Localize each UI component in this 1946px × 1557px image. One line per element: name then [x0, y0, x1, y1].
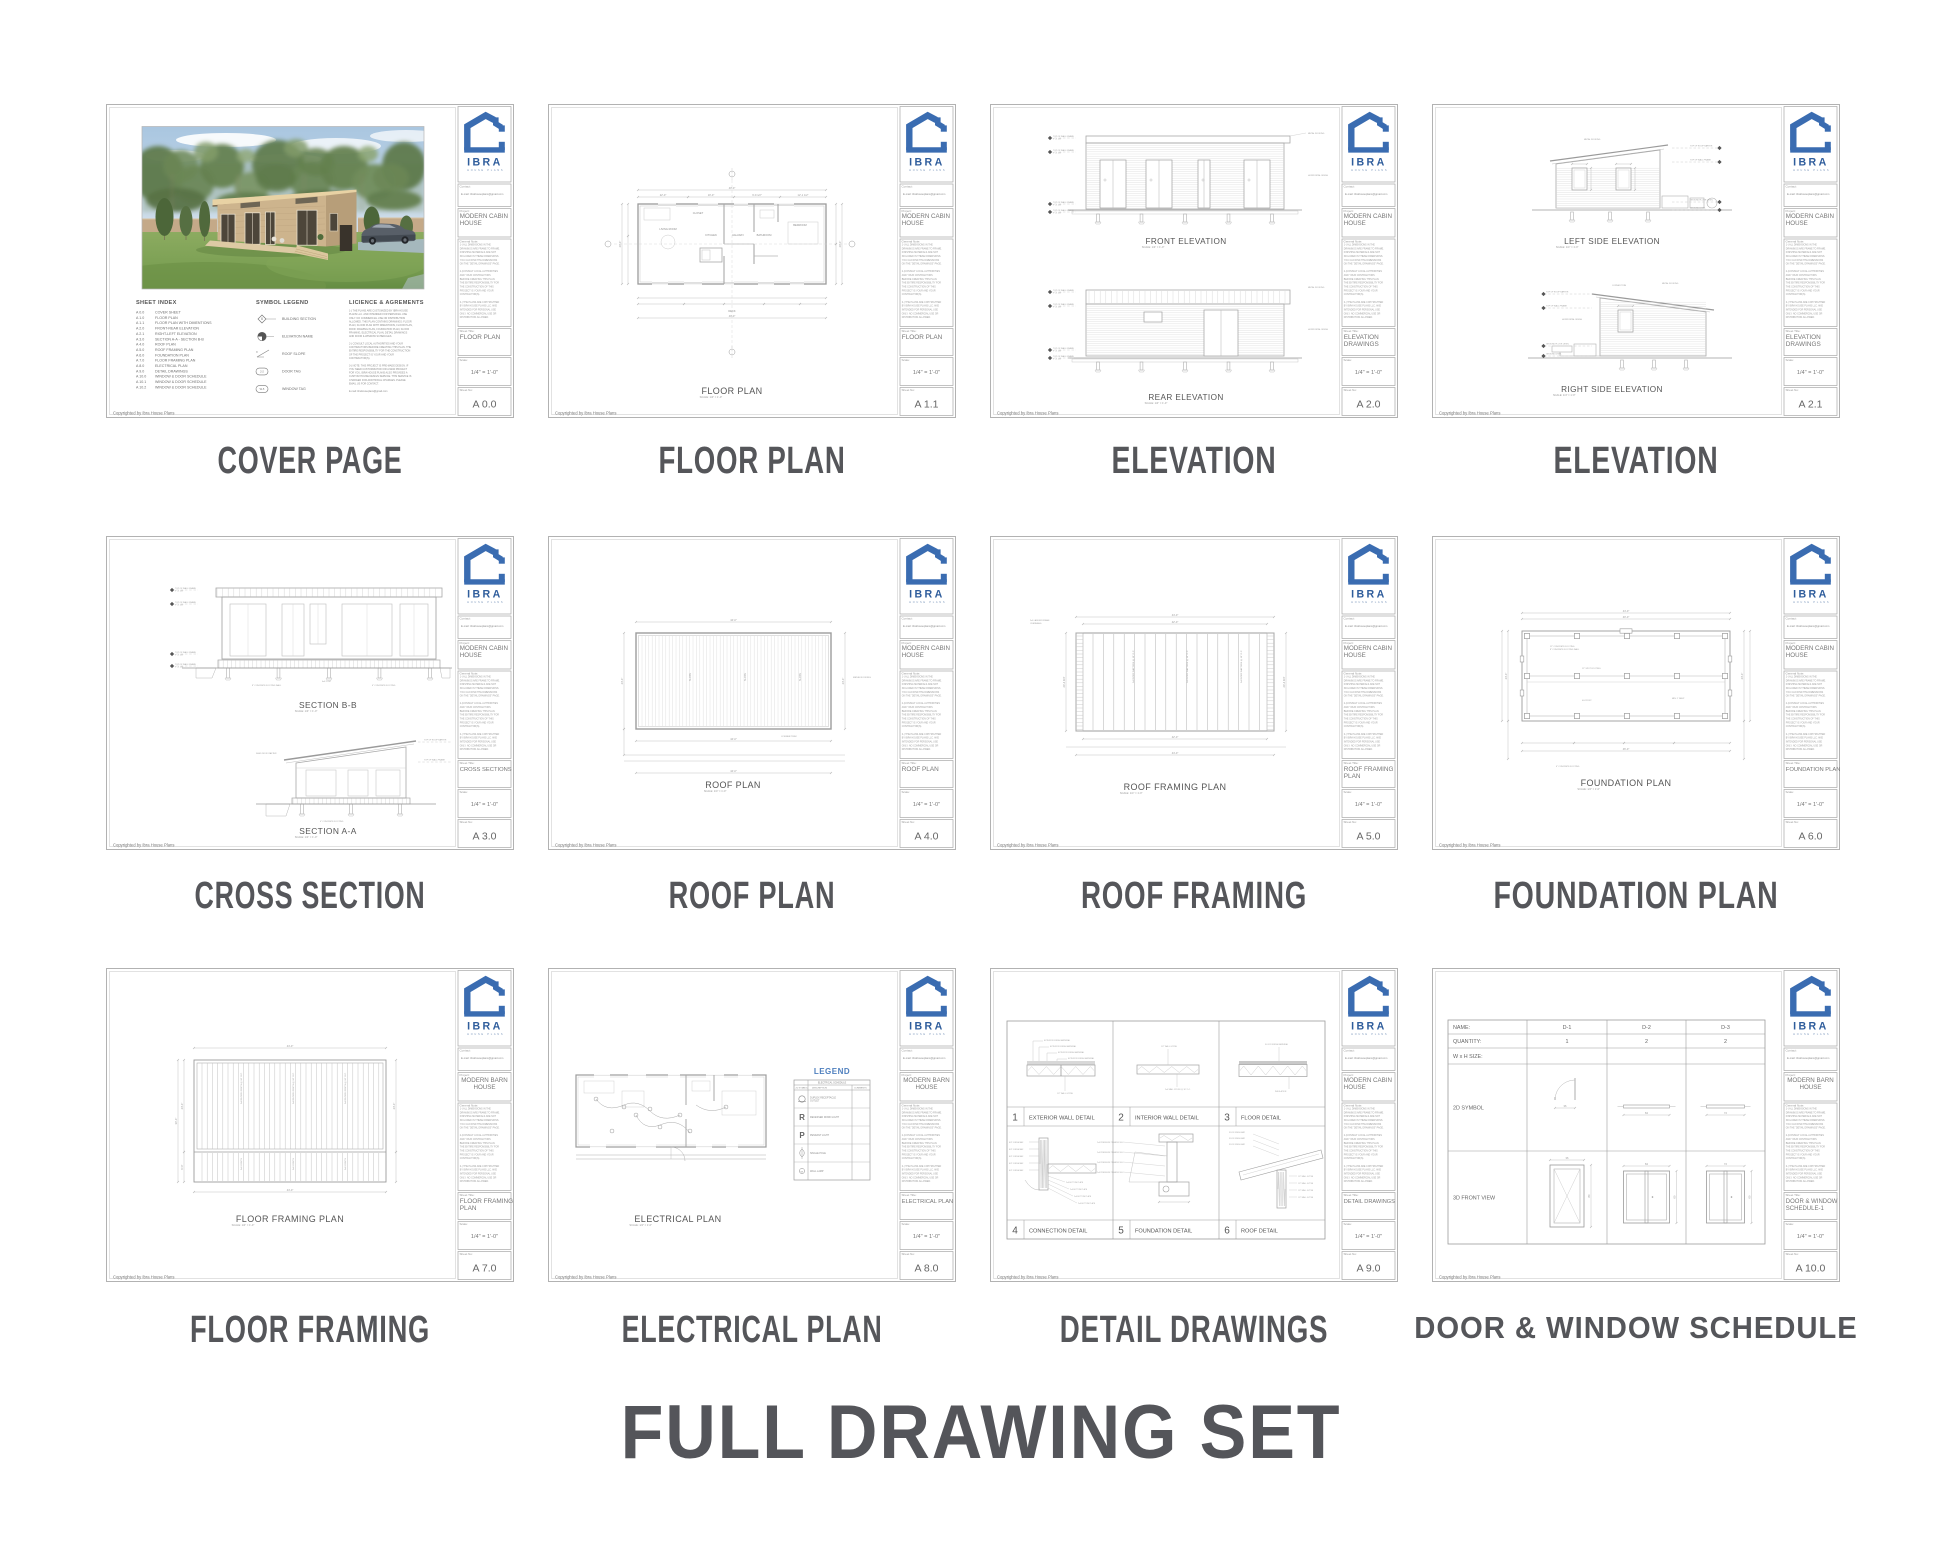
svg-text:A 0.0: A 0.0 [473, 399, 497, 411]
svg-text:IBRA: IBRA [1793, 588, 1829, 600]
svg-text:40'-0": 40'-0" [729, 314, 736, 318]
svg-text:1/4" = 1'-0": 1/4" = 1'-0" [913, 370, 940, 376]
svg-text:1-) THE PLANS ARE CUSTOMIZED B: 1-) THE PLANS ARE CUSTOMIZED BY IBRA HOU… [349, 310, 408, 313]
svg-text:INTENDED FOR PERSONAL USE: INTENDED FOR PERSONAL USE [460, 1172, 497, 1175]
svg-text:ALLOWED. THIS PLAN CONTAINS DR: ALLOWED. THIS PLAN CONTAINS DRAWINGS: FL… [349, 320, 412, 323]
svg-text:CLOSET: CLOSET [693, 211, 704, 215]
svg-text:CONTRACTOR(S).: CONTRACTOR(S). [1344, 1157, 1364, 1160]
svg-text:BEFORE CREATING THIS PLAN.: BEFORE CREATING THIS PLAN. [1344, 278, 1380, 281]
svg-text:RECESSED DOWN LIGHT: RECESSED DOWN LIGHT [810, 1116, 840, 1119]
svg-text:CONTRACTORS BEFORE CREATING TH: CONTRACTORS BEFORE CREATING THIS PLAN. T… [349, 346, 411, 349]
svg-text:ROOF FINISH MAT.: ROOF FINISH MAT. [1229, 1137, 1246, 1140]
svg-text:INSULATION: INSULATION [1275, 1090, 1287, 1093]
svg-text:2x6 JOISTS: 2x6 JOISTS [241, 1158, 243, 1170]
svg-text:A 4.0: A 4.0 [136, 343, 144, 347]
svg-text:PROJECT IS YOUR AND YOUR: PROJECT IS YOUR AND YOUR [1786, 721, 1820, 724]
svg-text:INTENDED FOR PERSONAL USE: INTENDED FOR PERSONAL USE [902, 1172, 939, 1175]
svg-text:1/4" = 1'-0": 1/4" = 1'-0" [1355, 802, 1382, 808]
svg-text:A 3.0: A 3.0 [473, 831, 497, 843]
svg-text:ROOF FRAMING: ROOF FRAMING [1344, 766, 1394, 773]
svg-text:TOP OF ROOF RAFTER: TOP OF ROOF RAFTER [424, 739, 447, 742]
svg-text:THE CONSTRUCTION OF THIS: THE CONSTRUCTION OF THIS [902, 719, 936, 721]
svg-text:3-) THE PLANS ARE COPYRIGHTED: 3-) THE PLANS ARE COPYRIGHTED [902, 733, 942, 736]
svg-text:W x H SIZE:: W x H SIZE: [1453, 1054, 1483, 1060]
svg-text:INCLUDED IN THESE DIMENSIONS.: INCLUDED IN THESE DIMENSIONS. [460, 256, 500, 258]
svg-text:BEFORE CREATING THIS PLAN.: BEFORE CREATING THIS PLAN. [902, 1142, 938, 1145]
svg-text:Copyrighted by Ibra House Plan: Copyrighted by Ibra House Plans [997, 843, 1058, 848]
svg-text:SINGLE POLE: SINGLE POLE [810, 1152, 826, 1155]
svg-text:THE ENTIRE RESPONSIBILITY FOR: THE ENTIRE RESPONSIBILITY FOR [902, 715, 941, 717]
svg-text:3-) THE PLANS ARE COPYRIGHTED: 3-) THE PLANS ARE COPYRIGHTED [460, 733, 500, 736]
svg-text:D-2: D-2 [1642, 1025, 1651, 1031]
svg-text:THE CONSTRUCTION OF THIS: THE CONSTRUCTION OF THIS [460, 719, 494, 721]
svg-text:1-) ALL DIMENSIONS IN THE: 1-) ALL DIMENSIONS IN THE [460, 676, 491, 679]
svg-text:9' - 1 1/8": 9' - 1 1/8" [175, 591, 184, 593]
svg-text:FOUNDATION DETAIL: FOUNDATION DETAIL [1135, 1229, 1192, 1235]
svg-text:YOU CAN FIND THE DIMENSIONS: YOU CAN FIND THE DIMENSIONS [902, 259, 940, 262]
svg-text:Copyrighted by Ibra House Plan: Copyrighted by Ibra House Plans [1439, 843, 1500, 848]
svg-text:FLOOR DETAIL: FLOOR DETAIL [1241, 1116, 1281, 1122]
svg-text:HORIZONTAL SIDING: HORIZONTAL SIDING [1562, 318, 1583, 321]
svg-text:NAME:: NAME: [1453, 1025, 1470, 1031]
svg-text:TOP OF WALL FRAME: TOP OF WALL FRAME [175, 651, 196, 654]
svg-text:1/4" = 1'-0": 1/4" = 1'-0" [913, 802, 940, 808]
svg-text:24'-0": 24'-0" [841, 678, 845, 685]
svg-text:6: 6 [1224, 1226, 1230, 1237]
svg-text:1/4" = 1'-0": 1/4" = 1'-0" [913, 1234, 940, 1240]
svg-text:INCLUDED IN THESE DIMENSIONS.: INCLUDED IN THESE DIMENSIONS. [460, 1120, 500, 1122]
svg-text:INTENDED FOR PERSONAL USE: INTENDED FOR PERSONAL USE [460, 308, 497, 311]
svg-text:A 9.0: A 9.0 [1357, 1263, 1381, 1275]
svg-text:HOUSE: HOUSE [1786, 220, 1808, 227]
svg-text:1/4" = 1'-0": 1/4" = 1'-0" [1355, 1234, 1382, 1240]
svg-text:Scale:: Scale: [1786, 358, 1795, 362]
svg-text:CONTRACTOR(S).: CONTRACTOR(S). [460, 293, 480, 296]
svg-text:A 2.0: A 2.0 [1357, 399, 1381, 411]
svg-text:Sheet No:: Sheet No: [460, 1252, 474, 1256]
svg-text:HOUSE: HOUSE [1344, 1084, 1366, 1091]
svg-text:2x6 PRESSURE TREATED SILL: 2x6 PRESSURE TREATED SILL [1097, 1141, 1123, 1144]
svg-text:40'-0": 40'-0" [1623, 615, 1630, 619]
svg-text:METAL ROOFING: METAL ROOFING [1308, 132, 1325, 135]
svg-text:Sheet Title:: Sheet Title: [460, 761, 475, 765]
svg-text:FLOOR PLAN: FLOOR PLAN [460, 334, 501, 341]
svg-text:MODERN CABIN: MODERN CABIN [460, 213, 508, 220]
svg-text:General Note:: General Note: [460, 240, 479, 244]
svg-text:DOOR & WINDOW: DOOR & WINDOW [1786, 1199, 1838, 1205]
svg-text:DRAWINGS: DRAWINGS [1786, 341, 1821, 348]
svg-text:TOP OF WALL FRAME: TOP OF WALL FRAME [424, 759, 445, 762]
svg-text:SYMBOL LEGEND: SYMBOL LEGEND [256, 300, 309, 306]
svg-text:OVERHANG: OVERHANG [1030, 622, 1042, 625]
svg-text:9' - 1 1/8": 9' - 1 1/8" [175, 605, 184, 607]
svg-text:9'-9 1/2": 9'-9 1/2" [752, 193, 762, 197]
svg-text:HOUSE: HOUSE [1344, 652, 1366, 659]
svg-text:DISTRIBUTION ALLOWED.: DISTRIBUTION ALLOWED. [902, 316, 931, 319]
svg-text:1-) ALL DIMENSIONS IN THE: 1-) ALL DIMENSIONS IN THE [902, 676, 933, 679]
svg-text:BY IBRA HOUSE PLANS LLC. AND: BY IBRA HOUSE PLANS LLC. AND [1786, 305, 1824, 308]
svg-text:ON THE “DETAIL DRAWINGS” PAGE.: ON THE “DETAIL DRAWINGS” PAGE. [1344, 695, 1384, 698]
svg-text:9' - 1 1/8": 9' - 1 1/8" [1053, 293, 1062, 295]
svg-text:FLOOR FRAMING PLAN: FLOOR FRAMING PLAN [155, 359, 196, 363]
svg-text:CROSS SECTIONS: CROSS SECTIONS [460, 767, 512, 773]
svg-text:ROOF FRAMING PLAN: ROOF FRAMING PLAN [155, 348, 194, 352]
svg-text:SECTION A-A - SECTION B-B: SECTION A-A - SECTION B-B [155, 337, 204, 341]
svg-text:THE CONSTRUCTION OF THIS: THE CONSTRUCTION OF THIS [902, 1151, 936, 1153]
svg-text:WINDOW & DOOR SCHEDULE: WINDOW & DOOR SCHEDULE [155, 385, 207, 389]
svg-text:ELEVATION: ELEVATION [1344, 334, 1379, 341]
svg-text:DISTRIBUTION ALLOWED.: DISTRIBUTION ALLOWED. [1786, 316, 1815, 319]
svg-text:2-)CONSULT LOCAL AUTHORITIES: 2-)CONSULT LOCAL AUTHORITIES [1786, 270, 1825, 273]
svg-text:A 4.0: A 4.0 [915, 831, 939, 843]
svg-text:E-mail: ibrahouseplans@gmail.c: E-mail: ibrahouseplans@gmail.com [1787, 624, 1830, 628]
svg-text:METAL ROOFING: METAL ROOFING [1662, 282, 1679, 285]
svg-text:Sheet No:: Sheet No: [902, 388, 916, 392]
svg-text:Sheet No:: Sheet No: [902, 1252, 916, 1256]
svg-text:10'-0": 10'-0" [708, 193, 715, 197]
svg-text:DETAIL DRAWINGS: DETAIL DRAWINGS [1344, 1199, 1395, 1205]
svg-text:PLAN, FLOOR PLAN WITH DIMENTIO: PLAN, FLOOR PLAN WITH DIMENTIONS, FLOOR … [349, 324, 413, 327]
svg-text:44'-0": 44'-0" [730, 769, 737, 773]
svg-text:INCLUDED IN THESE DIMENSIONS.: INCLUDED IN THESE DIMENSIONS. [1344, 688, 1384, 690]
svg-text:KITCHEN: KITCHEN [705, 233, 717, 237]
svg-text:2: 2 [1118, 1113, 1124, 1124]
svg-text:EXTERIOR FINISH MATERIAL: EXTERIOR FINISH MATERIAL [1050, 1045, 1076, 1048]
svg-text:A 6.0: A 6.0 [136, 353, 144, 357]
svg-text:1/4" = 1'-0": 1/4" = 1'-0" [1797, 1234, 1824, 1240]
svg-text:1-) ALL DIMENSIONS IN THE: 1-) ALL DIMENSIONS IN THE [1344, 1108, 1375, 1111]
svg-text:Copyrighted by Ibra House Plan: Copyrighted by Ibra House Plans [555, 411, 616, 416]
svg-text:4X4 POST: 4X4 POST [1582, 700, 1592, 702]
svg-text:HOUSE: HOUSE [1344, 220, 1366, 227]
svg-text:YOU NEED CUSTOMIZATION OR A NE: YOU NEED CUSTOMIZATION OR A NEW PROJECT [349, 368, 408, 371]
svg-text:INCLUDED IN THESE DIMENSIONS.: INCLUDED IN THESE DIMENSIONS. [902, 1120, 942, 1122]
svg-text:ONLY. NO COMMERCIAL USE OR DIS: ONLY. NO COMMERCIAL USE OR DISTRIBUTION [349, 317, 405, 320]
svg-text:2x8 FLOOR JOISTS @ 16" O.C.: 2x8 FLOOR JOISTS @ 16" O.C. [345, 1072, 347, 1104]
svg-text:INCLUDED IN THESE DIMENSIONS.: INCLUDED IN THESE DIMENSIONS. [902, 688, 942, 690]
svg-text:6" CONCRETE FOOTING: 6" CONCRETE FOOTING [372, 685, 396, 687]
svg-text:INTENDED FOR PERSONAL USE: INTENDED FOR PERSONAL USE [1344, 740, 1381, 743]
svg-text:24'-4 3/4": 24'-4 3/4" [1282, 676, 1286, 687]
svg-text:1/2" WALL GYPSE: 1/2" WALL GYPSE [1298, 1189, 1314, 1192]
svg-text:OF THE PROJECT IS YOUR AND YOU: OF THE PROJECT IS YOUR AND YOUR [349, 353, 394, 356]
svg-text:40'-0": 40'-0" [729, 186, 736, 190]
svg-text:SHED ROOF RAFTER: SHED ROOF RAFTER [256, 752, 277, 755]
svg-text:12" SPOT FOOTING: 12" SPOT FOOTING [1582, 668, 1601, 670]
svg-text:IBRA: IBRA [1793, 1020, 1829, 1032]
svg-text:9' - 1 1/8": 9' - 1 1/8" [175, 667, 184, 669]
svg-text:THE CONSTRUCTION OF THIS: THE CONSTRUCTION OF THIS [1786, 1151, 1820, 1153]
svg-text:DRAWINGS ARE FRAME TO FRAME.: DRAWINGS ARE FRAME TO FRAME. [1786, 1111, 1826, 1114]
svg-text:PROJECT IS YOUR AND YOUR: PROJECT IS YOUR AND YOUR [460, 1153, 494, 1156]
svg-text:Contact:: Contact: [460, 185, 471, 189]
svg-text:BY IBRA HOUSE PLANS LLC. AND: BY IBRA HOUSE PLANS LLC. AND [902, 737, 940, 740]
svg-text:YOU CAN FIND THE DIMENSIONS: YOU CAN FIND THE DIMENSIONS [460, 691, 498, 694]
svg-text:TOP OF WALL FRAME: TOP OF WALL FRAME [175, 601, 196, 604]
svg-text:EXT. FINISH MAT.: EXT. FINISH MAT. [1009, 1141, 1024, 1144]
svg-text:EXTERIOR FINISH MATERIAL: EXTERIOR FINISH MATERIAL [1058, 1051, 1084, 1054]
svg-text:3-) THE PLANS ARE COPYRIGHTED: 3-) THE PLANS ARE COPYRIGHTED [460, 301, 500, 304]
svg-text:2x8 ROOF RAFTERS @ 16" O.C.: 2x8 ROOF RAFTERS @ 16" O.C. [1132, 650, 1135, 683]
svg-text:HOUSE PLANS: HOUSE PLANS [1351, 1032, 1388, 1036]
svg-text:Scale:: Scale: [902, 1222, 911, 1226]
svg-text:20'-0": 20'-0" [618, 241, 622, 248]
svg-text:E-mail: ibrahouseplans@gmail.c: E-mail: ibrahouseplans@gmail.com [461, 192, 504, 196]
svg-text:1/2" WALL GYPSE: 1/2" WALL GYPSE [1298, 1182, 1314, 1185]
svg-text:THE ENTIRE RESPONSIBILITY FOR: THE ENTIRE RESPONSIBILITY FOR [1344, 283, 1383, 285]
svg-text:A 10.1: A 10.1 [136, 380, 146, 384]
svg-text:2-)CONSULT LOCAL AUTHORITIES: 2-)CONSULT LOCAL AUTHORITIES [902, 270, 941, 273]
svg-text:8" CONCRETE FOOTING WALL: 8" CONCRETE FOOTING WALL [252, 684, 282, 687]
svg-text:FINISHING MATERIALS ARE NOT: FINISHING MATERIALS ARE NOT [1786, 251, 1823, 254]
svg-text:1/4" = 1'-0": 1/4" = 1'-0" [471, 1234, 498, 1240]
svg-text:ONLY. NO COMMERCIAL USE OR: ONLY. NO COMMERCIAL USE OR [460, 744, 497, 747]
svg-text:DISTRIBUTION ALLOWED.: DISTRIBUTION ALLOWED. [460, 1180, 489, 1183]
svg-text:THE CONSTRUCTION OF THIS: THE CONSTRUCTION OF THIS [1786, 287, 1820, 289]
svg-text:DESCRIPTION: DESCRIPTION [812, 1087, 827, 1089]
svg-text:EMAIL US FOR CONTACT.: EMAIL US FOR CONTACT. [349, 383, 379, 386]
svg-text:A 10.0: A 10.0 [136, 375, 146, 379]
svg-text:TOP OF ROOF RAFTER: TOP OF ROOF RAFTER [1690, 145, 1713, 148]
svg-text:THE CONSTRUCTION OF THIS: THE CONSTRUCTION OF THIS [1344, 287, 1378, 289]
svg-text:4x4 POST: 4x4 POST [322, 681, 332, 683]
svg-text:IBRA: IBRA [467, 1020, 503, 1032]
svg-text:HOUSE: HOUSE [473, 1084, 495, 1091]
svg-text:BEFORE CREATING THIS PLAN.: BEFORE CREATING THIS PLAN. [1786, 278, 1822, 281]
svg-text:DISTRIBUTION ALLOWED.: DISTRIBUTION ALLOWED. [902, 748, 931, 751]
svg-text:BY IBRA HOUSE PLANS LLC. AND: BY IBRA HOUSE PLANS LLC. AND [460, 1169, 498, 1172]
svg-text:PLAN: PLAN [1344, 773, 1361, 780]
svg-text:TOP OF WALL FRAME: TOP OF WALL FRAME [175, 587, 196, 590]
svg-text:CHARGED FOR ADDITIONAL CHARGES: CHARGED FOR ADDITIONAL CHARGES. PLEASE [349, 379, 406, 382]
svg-text:3-) THE PLANS ARE COPYRIGHTED: 3-) THE PLANS ARE COPYRIGHTED [902, 1165, 942, 1168]
svg-text:PROJECT IS YOUR AND YOUR: PROJECT IS YOUR AND YOUR [1344, 289, 1378, 292]
svg-text:A 8.0: A 8.0 [915, 1263, 939, 1275]
svg-text:1/4" = 1'-0": 1/4" = 1'-0" [1797, 802, 1824, 808]
svg-text:INCLUDED IN THESE DIMENSIONS.: INCLUDED IN THESE DIMENSIONS. [1786, 688, 1826, 690]
svg-text:3-) THE PLANS ARE COPYRIGHTED: 3-) THE PLANS ARE COPYRIGHTED [1344, 301, 1384, 304]
svg-text:WINDOW & DOOR SCHEDULE: WINDOW & DOOR SCHEDULE [155, 380, 207, 384]
svg-text:General Note:: General Note: [460, 1104, 479, 1108]
svg-text:42'-0": 42'-0" [1172, 735, 1179, 739]
svg-text:ONLY. NO COMMERCIAL USE OR: ONLY. NO COMMERCIAL USE OR [902, 744, 939, 747]
svg-text:THE ENTIRE RESPONSIBILITY FOR: THE ENTIRE RESPONSIBILITY FOR [1786, 715, 1825, 717]
svg-text:TOP OF ROOF RAFTER: TOP OF ROOF RAFTER [1546, 291, 1569, 294]
svg-text:THE ENTIRE RESPONSIBILITY FOR: THE ENTIRE RESPONSIBILITY FOR [460, 1147, 499, 1149]
svg-text:9' - 1 1/8": 9' - 1 1/8" [1053, 351, 1062, 353]
svg-text:12" CONCRETE FOOTING: 12" CONCRETE FOOTING [1550, 646, 1575, 648]
svg-text:ONLY. NO COMMERCIAL USE OR: ONLY. NO COMMERCIAL USE OR [1786, 744, 1823, 747]
svg-text:CONTRACTOR(S).: CONTRACTOR(S). [460, 1157, 480, 1160]
svg-text:1-) ALL DIMENSIONS IN THE: 1-) ALL DIMENSIONS IN THE [902, 1108, 933, 1111]
svg-text:ONLY. NO COMMERCIAL USE OR: ONLY. NO COMMERCIAL USE OR [1344, 1176, 1381, 1179]
svg-text:2x6 PRESSURE TREATED SILL: 2x6 PRESSURE TREATED SILL [1097, 1171, 1123, 1174]
svg-text:DISTRIBUTION ALLOWED.: DISTRIBUTION ALLOWED. [460, 316, 489, 319]
svg-text:A 5.0: A 5.0 [136, 348, 144, 352]
svg-text:3-) THE PLANS ARE COPYRIGHTED: 3-) THE PLANS ARE COPYRIGHTED [460, 1165, 500, 1168]
svg-text:RIGHT SIDE ELEVATION: RIGHT SIDE ELEVATION [1561, 385, 1663, 394]
svg-text:E-mail: ibrahouseplans@gmail.c: E-mail: ibrahouseplans@gmail.com [1345, 192, 1388, 196]
svg-text:ONLY. NO COMMERCIAL USE OR: ONLY. NO COMMERCIAL USE OR [460, 312, 497, 315]
svg-text:A 7.0: A 7.0 [136, 359, 144, 363]
svg-text:THE ENTIRE RESPONSIBILITY FOR: THE ENTIRE RESPONSIBILITY FOR [460, 283, 499, 285]
svg-text:DISTRIBUTION ALLOWED.: DISTRIBUTION ALLOWED. [1344, 1180, 1373, 1183]
svg-text:A 3.0: A 3.0 [136, 337, 144, 341]
svg-text:INCLUDED IN THESE DIMENSIONS.: INCLUDED IN THESE DIMENSIONS. [902, 256, 942, 258]
svg-text:CONTRACTOR(S).: CONTRACTOR(S). [349, 357, 370, 360]
svg-text:WINDOW TAG: WINDOW TAG [282, 387, 306, 391]
svg-text:DETAIL DRAWINGS: DETAIL DRAWINGS [155, 369, 188, 373]
svg-text:BY IBRA HOUSE PLANS LLC. AND: BY IBRA HOUSE PLANS LLC. AND [1344, 1169, 1382, 1172]
svg-text:FLOOR PLAN: FLOOR PLAN [902, 334, 943, 341]
svg-text:HORIZONTAL SIDING: HORIZONTAL SIDING [1308, 328, 1329, 331]
svg-text:BATHROOM: BATHROOM [757, 233, 772, 237]
svg-text:General Note:: General Note: [1344, 240, 1363, 244]
svg-text:20'-0": 20'-0" [838, 241, 842, 248]
svg-text:INCLUDED IN THESE DIMENSIONS.: INCLUDED IN THESE DIMENSIONS. [1344, 1120, 1384, 1122]
svg-text:Sheet Title:: Sheet Title: [1344, 761, 1359, 765]
svg-text:2x8 FLOOR JOISTS @ 16" O.C.: 2x8 FLOOR JOISTS @ 16" O.C. [293, 1072, 295, 1104]
svg-text:E-mail: ibrahouseplans@gmail.c: E-mail: ibrahouseplans@gmail.com [1787, 1056, 1830, 1060]
svg-text:1-) ALL DIMENSIONS IN THE: 1-) ALL DIMENSIONS IN THE [1344, 244, 1375, 247]
svg-text:2x6 JOISTS: 2x6 JOISTS [345, 1158, 347, 1170]
svg-text:CONTRACTOR(S).: CONTRACTOR(S). [902, 293, 922, 296]
svg-text:Sheet Title:: Sheet Title: [1786, 761, 1801, 765]
svg-text:RIGHT-LEFT ELEVATION: RIGHT-LEFT ELEVATION [155, 332, 197, 336]
svg-text:4: 4 [1012, 1226, 1018, 1237]
svg-text:EXTERIOR FINISH MATERIAL: EXTERIOR FINISH MATERIAL [1044, 1039, 1070, 1042]
svg-text:FINISHING MATERIALS ARE NOT: FINISHING MATERIALS ARE NOT [1786, 683, 1823, 686]
svg-text:A 1.1: A 1.1 [136, 321, 144, 325]
svg-text:8" CONCRETE FOOTING WALL: 8" CONCRETE FOOTING WALL [1550, 648, 1580, 651]
svg-text:A 10.2: A 10.2 [136, 385, 146, 389]
svg-text:2-)CONSULT LOCAL AUTHORITIES: 2-)CONSULT LOCAL AUTHORITIES [1344, 1134, 1383, 1137]
svg-text:General Note:: General Note: [1344, 1104, 1363, 1108]
svg-text:ON THE “DETAIL DRAWINGS” PAGE.: ON THE “DETAIL DRAWINGS” PAGE. [902, 695, 942, 698]
svg-text:Contact:: Contact: [1786, 617, 1797, 621]
svg-text:TOP OF WALL FRAME: TOP OF WALL FRAME [175, 663, 196, 666]
svg-text:30'-0": 30'-0" [174, 1118, 178, 1125]
svg-text:DRAWINGS ARE FRAME TO FRAME.: DRAWINGS ARE FRAME TO FRAME. [902, 1111, 942, 1114]
svg-text:THE ENTIRE RESPONSIBILITY FOR: THE ENTIRE RESPONSIBILITY FOR [1344, 715, 1383, 717]
svg-text:CONTRACTOR(S).: CONTRACTOR(S). [1786, 725, 1806, 728]
svg-text:1/4" = 1'-0": 1/4" = 1'-0" [471, 370, 498, 376]
svg-text:IBRA: IBRA [909, 156, 945, 168]
svg-text:BEFORE CREATING THIS PLAN.: BEFORE CREATING THIS PLAN. [1344, 1142, 1380, 1145]
svg-text:FINISHING MATERIALS ARE NOT: FINISHING MATERIALS ARE NOT [1344, 251, 1381, 254]
svg-text:SCALE: 1/4" = 1'-0": SCALE: 1/4" = 1'-0" [704, 789, 727, 793]
svg-text:THE ENTIRE RESPONSIBILITY FOR: THE ENTIRE RESPONSIBILITY FOR [902, 283, 941, 285]
svg-text:2: 2 [1645, 1039, 1648, 1045]
svg-text:SCALE: 1/4" = 1'-0": SCALE: 1/4" = 1'-0" [700, 395, 723, 399]
svg-text:IBRA: IBRA [1351, 1020, 1387, 1032]
svg-text:General Note:: General Note: [902, 672, 921, 676]
svg-text:BY IBRA HOUSE PLANS LLC. AND: BY IBRA HOUSE PLANS LLC. AND [902, 305, 940, 308]
svg-text:FOR YOU, IBRA HOUSE PLANS ALSO: FOR YOU, IBRA HOUSE PLANS ALSO PROVIDES … [349, 372, 408, 375]
svg-text:BEFORE CREATING THIS PLAN.: BEFORE CREATING THIS PLAN. [1786, 710, 1822, 713]
svg-text:HOUSE: HOUSE [902, 652, 924, 659]
svg-text:HOUSE PLANS: HOUSE PLANS [909, 600, 946, 604]
svg-text:THE ENTIRE RESPONSIBILITY FOR: THE ENTIRE RESPONSIBILITY FOR [902, 1147, 941, 1149]
svg-text:BY IBRA HOUSE PLANS LLC. AND: BY IBRA HOUSE PLANS LLC. AND [902, 1169, 940, 1172]
svg-text:A 2.1: A 2.1 [136, 332, 144, 336]
svg-text:9' - 1 1/8": 9' - 1 1/8" [1053, 213, 1062, 215]
svg-text:HOUSE PLANS: HOUSE PLANS [1793, 1032, 1830, 1036]
svg-text:3-) THE PLANS ARE COPYRIGHTED: 3-) THE PLANS ARE COPYRIGHTED [1344, 1165, 1384, 1168]
svg-text:SCALE: 1/4" = 1'-0": SCALE: 1/4" = 1'-0" [629, 1223, 652, 1227]
svg-text:EXTERIOR FINISH MATERIAL: EXTERIOR FINISH MATERIAL [1068, 1057, 1094, 1060]
svg-text:SLOPE: SLOPE [799, 673, 802, 681]
svg-text:Contact:: Contact: [902, 1049, 913, 1053]
svg-text:Sheet Title:: Sheet Title: [1786, 1193, 1801, 1197]
svg-text:A 5.0: A 5.0 [1357, 831, 1381, 843]
svg-text:Contact:: Contact: [1344, 1049, 1355, 1053]
svg-text:1/2" WALL GYPSE: 1/2" WALL GYPSE [1298, 1175, 1314, 1178]
svg-text:COMMENTS: COMMENTS [854, 1087, 867, 1089]
svg-text:IBRA: IBRA [1351, 588, 1387, 600]
svg-text:CORNER TRIM: CORNER TRIM [1612, 285, 1626, 287]
svg-text:A 1.1: A 1.1 [915, 399, 939, 411]
svg-text:2x6 LADDER FRAME: 2x6 LADDER FRAME [1030, 619, 1050, 622]
svg-text:2D SYMBOL: 2D SYMBOL [1453, 1106, 1484, 1112]
svg-text:ROOF FRAMING PLAN, FOUNDATION: ROOF FRAMING PLAN, FOUNDATION PLAN, FLOO… [349, 328, 409, 331]
svg-text:Copyrighted by Ibra House Plan: Copyrighted by Ibra House Plans [555, 1275, 616, 1280]
svg-text:MIN. 2' DEEP: MIN. 2' DEEP [1672, 698, 1685, 700]
svg-text:YOU CAN FIND THE DIMENSIONS: YOU CAN FIND THE DIMENSIONS [460, 259, 498, 262]
svg-text:OUTLET: OUTLET [810, 1100, 820, 1103]
svg-text:EXTERIOR WALL DETAIL: EXTERIOR WALL DETAIL [1029, 1116, 1095, 1122]
svg-text:2x4 WALL STUDS @ 16" O.C.: 2x4 WALL STUDS @ 16" O.C. [1165, 1088, 1191, 1091]
svg-text:CONTRACTOR(S).: CONTRACTOR(S). [1786, 293, 1806, 296]
svg-text:INTENDED FOR PERSONAL USE: INTENDED FOR PERSONAL USE [1344, 1172, 1381, 1175]
svg-text:46'-0": 46'-0" [1623, 747, 1630, 751]
svg-text:E-mail: ibrahouseplans@gmail.c: E-mail: ibrahouseplans@gmail.com [349, 390, 387, 393]
svg-text:GROUND FLOOR LEVEL: GROUND FLOOR LEVEL [1546, 344, 1570, 346]
svg-text:BEFORE CREATING THIS PLAN.: BEFORE CREATING THIS PLAN. [1344, 710, 1380, 713]
svg-text:AND YOUR CONTRACTORS: AND YOUR CONTRACTORS [902, 274, 933, 277]
svg-text:1/4" = 1'-0": 1/4" = 1'-0" [471, 802, 498, 808]
svg-text:ELECTRICAL PLAN: ELECTRICAL PLAN [155, 364, 188, 368]
svg-text:DRAWINGS ARE FRAME TO FRAME.: DRAWINGS ARE FRAME TO FRAME. [902, 679, 942, 682]
svg-text:ELEVATION: ELEVATION [1786, 334, 1821, 341]
svg-text:IBRA: IBRA [1793, 156, 1829, 168]
svg-text:2x6 PRESSURE TREATED SILL: 2x6 PRESSURE TREATED SILL [1097, 1161, 1123, 1164]
svg-text:PROJECT IS YOUR AND YOUR: PROJECT IS YOUR AND YOUR [902, 721, 936, 724]
svg-text:MODERN CABIN: MODERN CABIN [1786, 213, 1834, 220]
svg-text:3-) THE PLANS ARE COPYRIGHTED: 3-) THE PLANS ARE COPYRIGHTED [1344, 733, 1384, 736]
svg-text:DISTRIBUTION ALLOWED.: DISTRIBUTION ALLOWED. [1344, 316, 1373, 319]
svg-text:YOU CAN FIND THE DIMENSIONS: YOU CAN FIND THE DIMENSIONS [1786, 1123, 1824, 1126]
svg-text:Sheet Title:: Sheet Title: [902, 329, 917, 333]
svg-text:IBRA: IBRA [467, 588, 503, 600]
svg-text:Scale:: Scale: [1344, 358, 1353, 362]
svg-text:HOUSE PLANS: HOUSE PLANS [1793, 168, 1830, 172]
svg-text:Copyrighted by Ibra House Plan: Copyrighted by Ibra House Plans [555, 843, 616, 848]
svg-text:Sheet Title:: Sheet Title: [902, 761, 917, 765]
svg-text:SCALE: 1/4" = 1'-0": SCALE: 1/4" = 1'-0" [1120, 791, 1143, 795]
svg-text:12'-1 1/2": 12'-1 1/2" [798, 193, 809, 197]
svg-text:2-)CONSULT LOCAL AUTHORITIES: 2-)CONSULT LOCAL AUTHORITIES [902, 1134, 941, 1137]
svg-text:Sheet Title:: Sheet Title: [902, 1193, 917, 1197]
svg-text:PROJECT IS YOUR AND YOUR: PROJECT IS YOUR AND YOUR [460, 721, 494, 724]
svg-text:MODERN CABIN: MODERN CABIN [902, 645, 950, 652]
svg-text:Contact:: Contact: [1786, 1049, 1797, 1053]
svg-text:SECTION A-A: SECTION A-A [299, 826, 356, 836]
svg-text:GROUND LEVEL: GROUND LEVEL [1546, 354, 1563, 356]
svg-text:Scale:: Scale: [902, 790, 911, 794]
svg-text:Copyrighted by Ibra House Plan: Copyrighted by Ibra House Plans [113, 1275, 174, 1280]
svg-text:Copyrighted by Ibra House Plan: Copyrighted by Ibra House Plans [997, 411, 1058, 416]
